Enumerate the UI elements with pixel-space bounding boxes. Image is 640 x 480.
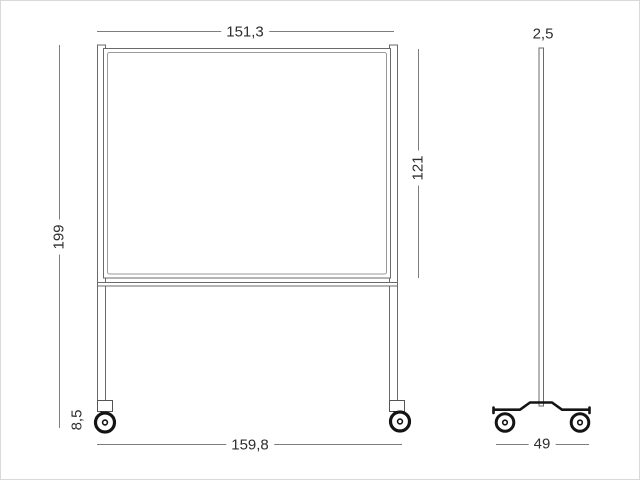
dimension-label-board-width: 151,3 — [221, 24, 269, 41]
caster-hub — [103, 420, 108, 425]
front-view-drawing — [96, 45, 410, 432]
dimension-drawing-canvas — [1, 1, 640, 480]
caster-socket — [390, 401, 405, 412]
dimension-label-base-depth: 49 — [529, 436, 556, 453]
whiteboard-outer-frame — [104, 49, 391, 279]
caster-socket — [98, 401, 113, 412]
dimension-label-caster-height: 8,5 — [69, 405, 86, 436]
side-right-caster — [571, 414, 589, 432]
caster-hub — [398, 419, 403, 424]
crossbar — [98, 283, 398, 287]
side-pole — [539, 48, 544, 406]
side-view-drawing — [494, 48, 590, 431]
dimension-label-total-height: 199 — [51, 219, 68, 254]
dimension-label-board-height: 121 — [410, 150, 427, 185]
technical-drawing: 151,3 121 199 8,5 159,8 2,5 49 — [0, 0, 640, 480]
caster-hub — [503, 420, 508, 425]
side-left-caster — [496, 414, 514, 432]
caster-hub — [578, 420, 583, 425]
dimension-label-base-width: 159,8 — [226, 437, 274, 454]
front-right-caster — [390, 401, 410, 432]
dimension-label-frame-thickness: 2,5 — [528, 26, 559, 43]
front-left-caster — [96, 401, 115, 433]
